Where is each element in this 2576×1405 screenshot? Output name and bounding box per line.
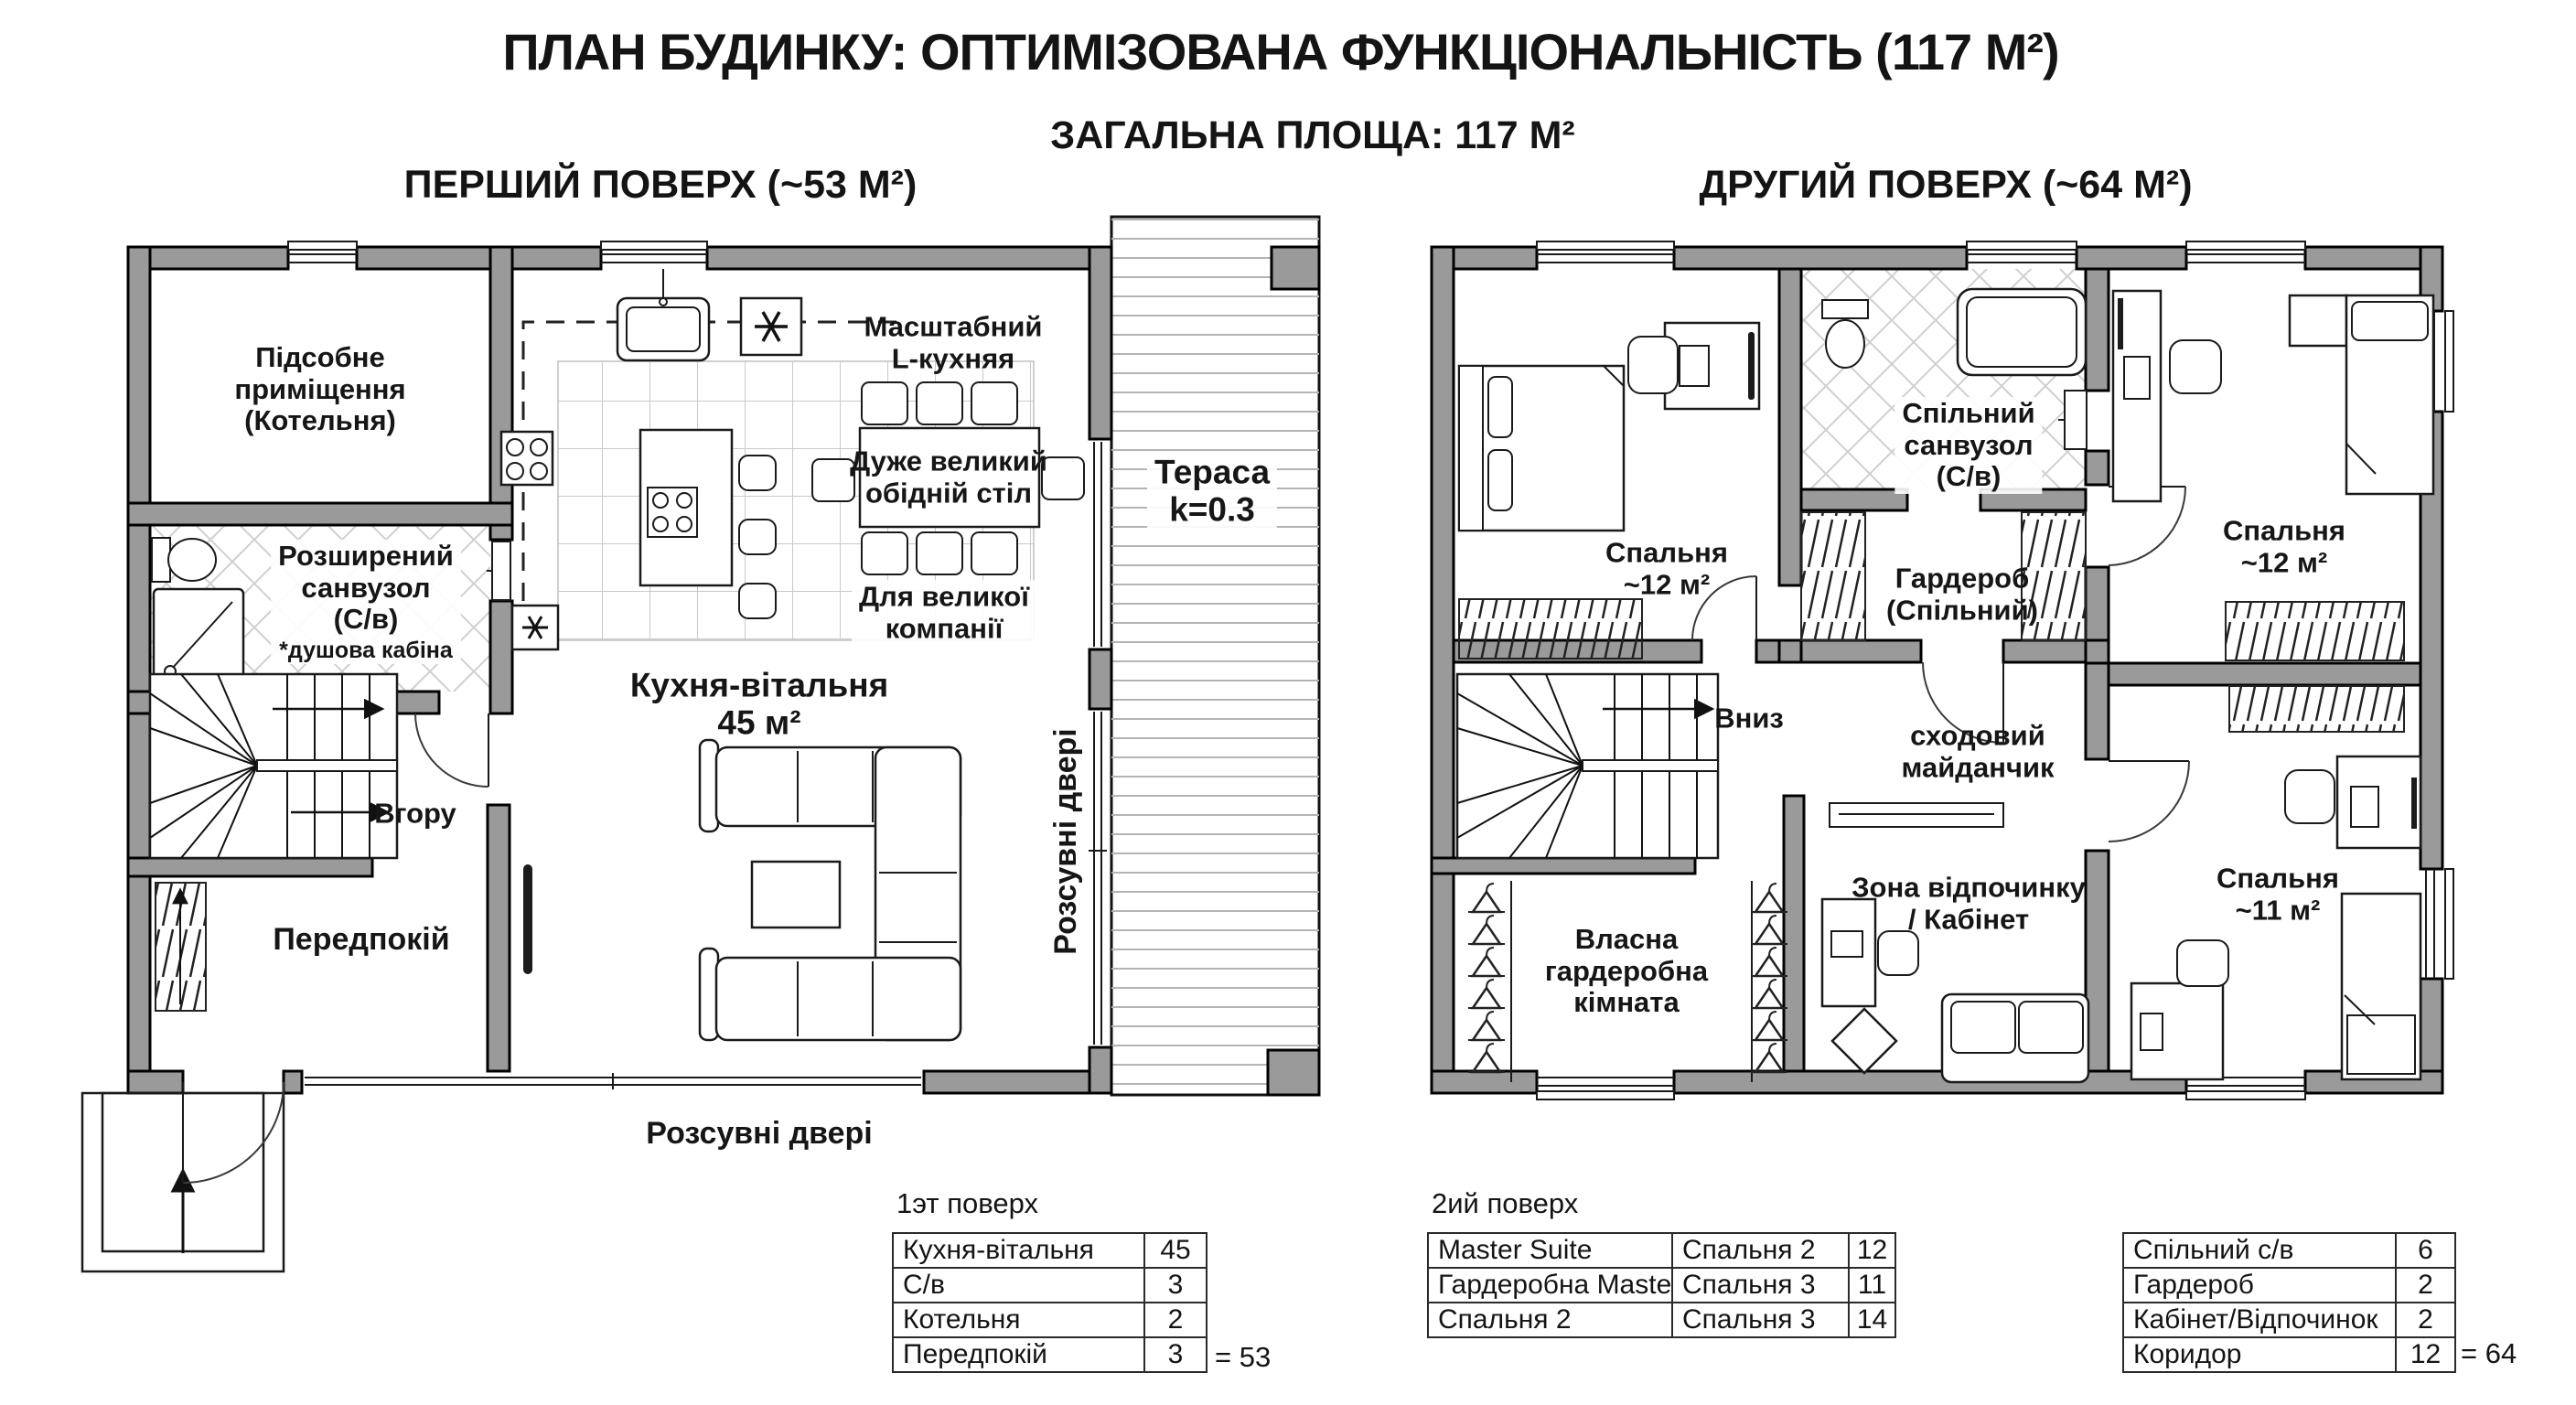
room-label-master: Спальня~12 м²	[1605, 537, 1728, 600]
floor1-header: ПЕРШИЙ ПОВЕРХ (~53 М²)	[404, 163, 918, 208]
total-area-subtitle: ЗАГАЛЬНА ПЛОЩА: 117 М²	[1050, 113, 1575, 158]
nightstand	[2290, 295, 2346, 346]
table1-header: 1эт поверх	[896, 1187, 1038, 1220]
table-row: Гардероб2	[2123, 1268, 2455, 1303]
table-row: Спальня 212	[1672, 1233, 1895, 1268]
room-label-bedroom3: Спальня~11 м²	[2216, 863, 2339, 926]
floor2-header: ДРУГИЙ ПОВЕРХ (~64 М²)	[1699, 163, 2192, 208]
floor1-area-table: Кухня-вітальня45 С/в3 Котельня2 Передпок…	[892, 1232, 1207, 1373]
table-row: Спальня 314	[1672, 1303, 1895, 1337]
table-row: Спільний с/в6	[2123, 1233, 2455, 1268]
floor2-area-table-c: Спільний с/в6 Гардероб2 Кабінет/Відпочин…	[2122, 1232, 2456, 1373]
stairs-down-label: Вниз	[1714, 703, 1784, 735]
coffee-table	[752, 862, 840, 928]
wardrobe	[1459, 599, 1642, 659]
chair	[2285, 770, 2334, 823]
room-label-bathroom1: Розширенийсанвузол(С/в) *душова кабіна	[271, 540, 461, 664]
chair	[1878, 931, 1918, 975]
table2-header: 2ий поверх	[1432, 1187, 1578, 1220]
toilet	[1822, 300, 1868, 318]
room-label-bedroom2: Спальня~12 м²	[2223, 515, 2345, 578]
room-label-shared-bath: Спільнийсанвузол(С/в)	[1894, 397, 2042, 494]
room-label-utility: Підсобнеприміщення(Котельня)	[234, 342, 405, 437]
floor2-plan: Спальня~12 м² Спільнийсанвузол(С/в) Гард…	[1409, 210, 2576, 1125]
chair	[1628, 337, 1678, 393]
floor1-plan: Підсобнеприміщення(Котельня) Розширенийс…	[79, 210, 1332, 1285]
table-row: Кухня-вітальня45	[893, 1233, 1207, 1268]
room-label-landing: сходовиймайданчик	[1901, 720, 2054, 783]
floor1-total: = 53	[1215, 1341, 1271, 1374]
tv-panel	[523, 864, 532, 974]
table-row: Коридор12	[2123, 1337, 2455, 1372]
pouf	[1832, 1009, 1896, 1073]
master-bedroom-furniture	[1459, 323, 1759, 659]
page-title: ПЛАН БУДИНКУ: ОПТИМІЗОВАНА ФУНКЦІОНАЛЬНІ…	[502, 22, 2058, 81]
room-label-kitchen-type: МасштабнийL-кухняя	[864, 311, 1043, 374]
stairs-up	[150, 674, 397, 858]
floor2-total: = 64	[2461, 1337, 2517, 1370]
table-row: Передпокій3	[893, 1337, 1207, 1372]
hall-door-arc	[415, 713, 488, 787]
room-label-dining-table: Дуже великийобідній стіл	[850, 445, 1047, 509]
room-label-living: Кухня-вітальня45 м²	[630, 667, 888, 743]
porch	[82, 1082, 284, 1271]
table-row: Котельня2	[893, 1303, 1207, 1337]
sliding-door-bottom-label: Розсувні двері	[646, 1116, 873, 1151]
chair	[2177, 940, 2228, 986]
sofa-sectional	[700, 740, 961, 1040]
floor2-area-table-b: Спальня 212 Спальня 311 Спальня 314	[1671, 1232, 1896, 1338]
sliding-door-right-label: Розсувні двері	[1048, 728, 1083, 955]
stairs-down	[1457, 674, 1718, 858]
room-label-rest-zone: Зона відпочинку/ Кабінет	[1851, 872, 2086, 935]
bathroom1-door	[492, 542, 510, 600]
rest-zone-furniture	[1822, 803, 2088, 1082]
wardrobe	[2226, 602, 2404, 660]
sliding-door-right	[1089, 442, 1107, 1045]
table-row: Кабінет/Відпочинок2	[2123, 1303, 2455, 1337]
sliding-door-bottom	[305, 1073, 921, 1089]
table-row: С/в3	[893, 1268, 1207, 1303]
floor-plan-page: { "title": "ПЛАН БУДИНКУ: ОПТИМІЗОВАНА Ф…	[0, 0, 2576, 1405]
wardrobe	[2229, 686, 2404, 732]
room-label-dining-note: Для великоїкомпанії	[852, 580, 1036, 645]
chair	[2170, 340, 2221, 393]
wardrobe	[1801, 512, 1865, 640]
table-row: Спальня 311	[1672, 1268, 1895, 1303]
terrace	[1111, 217, 1319, 1095]
stairs-up-label: Вгору	[374, 799, 456, 831]
room-label-own-wardrobe: Власнагардеробнакімната	[1545, 924, 1708, 1019]
room-label-hall: Передпокій	[273, 922, 449, 957]
room-label-terrace: Терасаk=0.3	[1147, 453, 1277, 531]
bedroom2-furniture	[2113, 291, 2433, 660]
room-label-shared-wardrobe: Гардероб(Спільний)	[1886, 563, 2038, 626]
bathroom2-door	[2065, 391, 2087, 449]
